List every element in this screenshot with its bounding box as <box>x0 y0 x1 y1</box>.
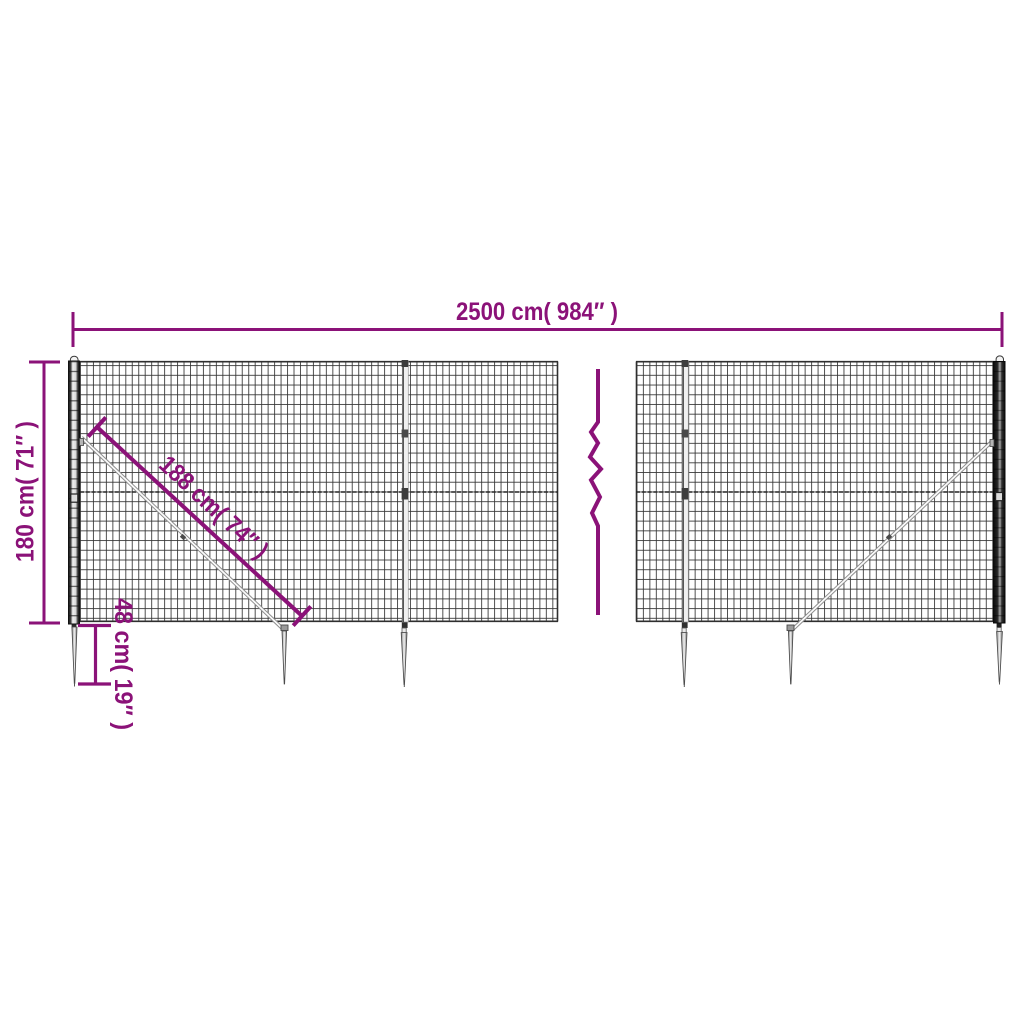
svg-text:180 cm( 71″ ): 180 cm( 71″ ) <box>12 421 40 562</box>
svg-text:48 cm( 19″ ): 48 cm( 19″ ) <box>109 598 137 730</box>
svg-text:2500 cm( 984″ ): 2500 cm( 984″ ) <box>456 298 618 326</box>
